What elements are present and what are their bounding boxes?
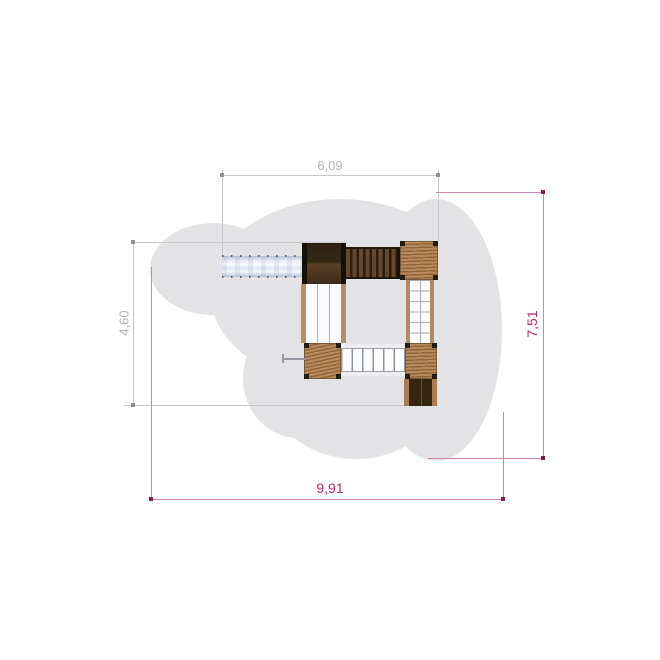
slide-edge-ticks bbox=[222, 276, 303, 278]
corner-post bbox=[400, 275, 405, 280]
dim-marker bbox=[149, 497, 153, 501]
dim-ext-right-bottom bbox=[428, 458, 543, 459]
dim-marker bbox=[131, 240, 135, 244]
wall-center-line bbox=[421, 379, 422, 406]
rope-platform-bottom-right bbox=[405, 343, 437, 379]
corner-post bbox=[304, 343, 309, 348]
dim-line-left bbox=[133, 242, 134, 405]
corner-post bbox=[304, 374, 309, 379]
corner-post bbox=[400, 241, 405, 246]
climbing-net bbox=[406, 280, 434, 343]
dim-line-top bbox=[222, 175, 438, 176]
dim-marker bbox=[541, 190, 545, 194]
climbing-wall bbox=[404, 379, 437, 406]
dim-marker bbox=[541, 456, 545, 460]
bar-rail bbox=[329, 284, 330, 343]
dim-label-top-width: 6,09 bbox=[317, 158, 342, 173]
slide-platform bbox=[302, 243, 346, 284]
dim-ext-right-top bbox=[436, 192, 543, 193]
rope-platform-bottom-left bbox=[304, 343, 341, 379]
net-center-line bbox=[420, 280, 421, 343]
grab-pole bbox=[283, 358, 305, 360]
dim-ext-left-bottom bbox=[124, 405, 438, 406]
corner-post bbox=[405, 343, 410, 348]
dim-marker bbox=[436, 173, 440, 177]
dim-line-bottom bbox=[151, 499, 503, 500]
dim-label-bottom-width: 9,91 bbox=[316, 480, 343, 496]
dim-label-left-height: 4,60 bbox=[117, 310, 132, 335]
dim-ext-top-left bbox=[222, 170, 223, 256]
parallel-bars bbox=[301, 284, 346, 343]
rung-ladder bbox=[341, 344, 406, 376]
slide-edge-ticks bbox=[222, 255, 303, 257]
dim-ext-top-right bbox=[438, 170, 439, 241]
dim-marker bbox=[501, 497, 505, 501]
bar-rail bbox=[317, 284, 318, 343]
dim-line-right bbox=[543, 192, 544, 458]
dim-marker bbox=[131, 403, 135, 407]
dim-marker bbox=[220, 173, 224, 177]
plan-drawing-canvas: 6,09 4,60 9,91 7,51 bbox=[0, 0, 660, 660]
dim-label-right-height: 7,51 bbox=[524, 310, 540, 337]
dim-ext-bottom-left bbox=[151, 267, 152, 499]
dim-ext-bottom-right bbox=[503, 412, 504, 499]
ladder-rungs bbox=[341, 348, 406, 372]
rope-platform-top-right bbox=[400, 241, 438, 280]
grab-pole-end bbox=[282, 354, 284, 363]
corner-post bbox=[432, 343, 437, 348]
corner-post bbox=[433, 241, 438, 246]
slide bbox=[222, 256, 303, 277]
plank-bridge bbox=[346, 247, 400, 279]
